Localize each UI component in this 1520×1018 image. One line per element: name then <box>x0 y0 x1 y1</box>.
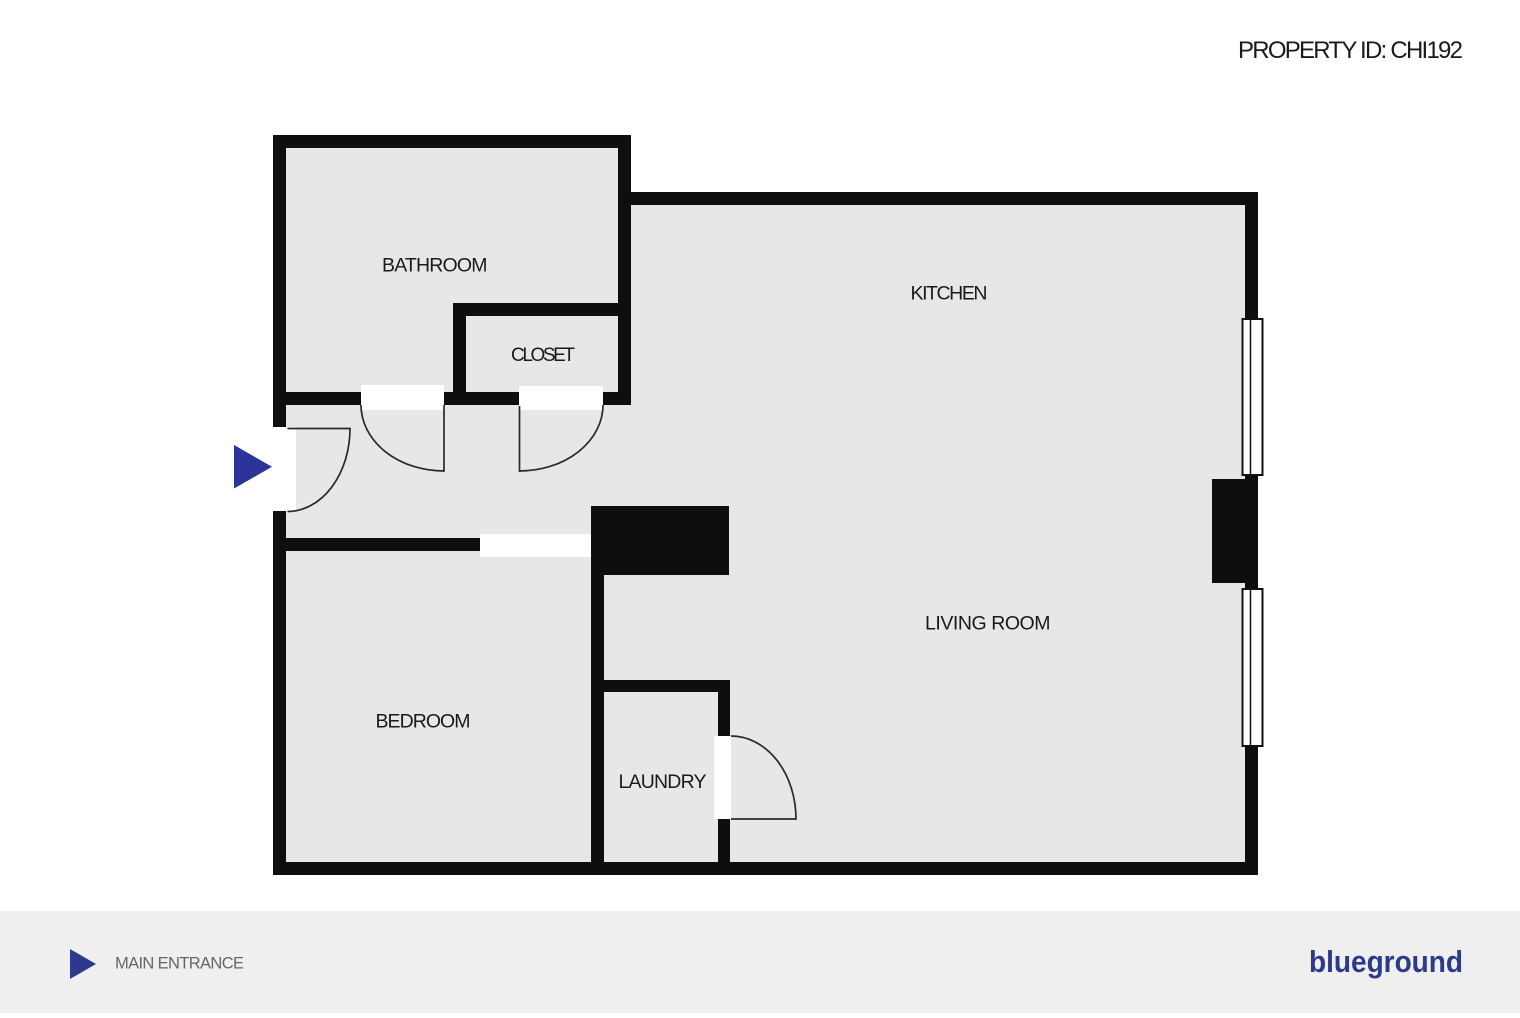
svg-text:blueground: blueground <box>1309 944 1463 979</box>
svg-text:LIVING ROOM: LIVING ROOM <box>925 613 1051 635</box>
svg-text:LAUNDRY: LAUNDRY <box>619 771 707 793</box>
svg-text:MAIN ENTRANCE: MAIN ENTRANCE <box>115 955 244 973</box>
svg-text:BATHROOM: BATHROOM <box>382 255 488 277</box>
svg-text:BEDROOM: BEDROOM <box>376 711 471 733</box>
svg-text:PROPERTY ID: CHI192: PROPERTY ID: CHI192 <box>1238 37 1463 64</box>
svg-text:KITCHEN: KITCHEN <box>911 283 988 305</box>
svg-text:CLOSET: CLOSET <box>511 345 575 366</box>
